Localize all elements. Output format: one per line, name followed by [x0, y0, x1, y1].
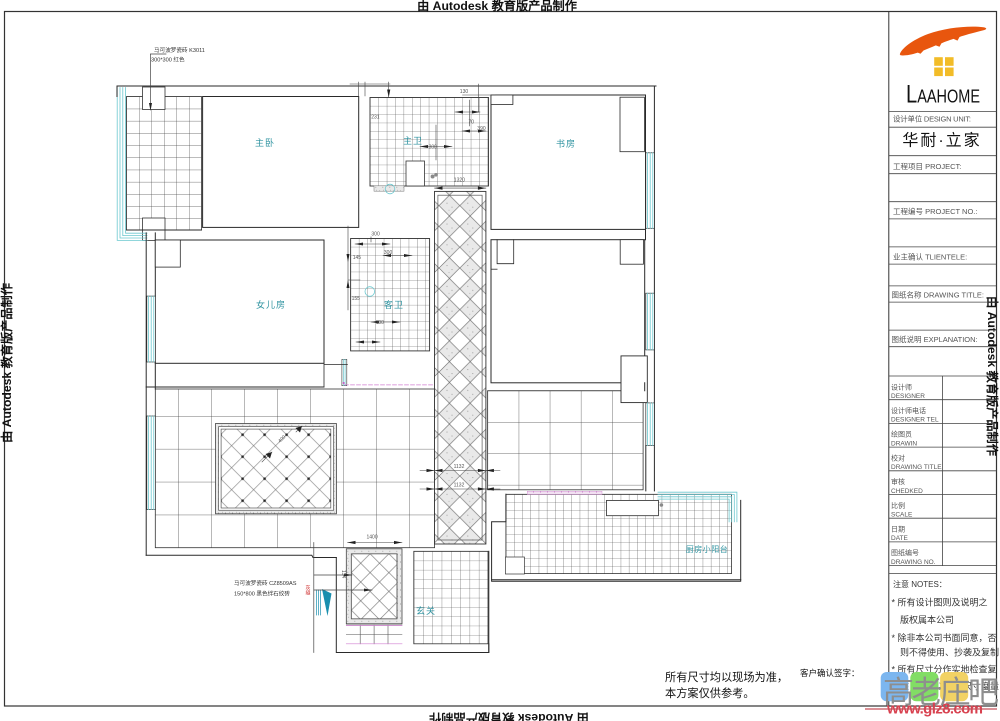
svg-text:图纸编号: 图纸编号 [891, 548, 919, 557]
svg-text:1132: 1132 [454, 464, 465, 470]
svg-text:DATE: DATE [891, 535, 909, 542]
svg-text:日期: 日期 [891, 526, 905, 534]
svg-text:校对: 校对 [891, 453, 905, 462]
svg-text:图纸名称 DRAWING TITLE:: 图纸名称 DRAWING TITLE: [892, 290, 985, 300]
svg-text:华耐·立家: 华耐·立家 [902, 132, 981, 150]
svg-text:绘图员: 绘图员 [891, 430, 912, 439]
svg-text:设计师: 设计师 [891, 383, 912, 392]
svg-text:工程项目 PROJECT:: 工程项目 PROJECT: [893, 162, 961, 171]
svg-text:由 Autodesk 教育版产品制作: 由 Autodesk 教育版产品制作 [417, 0, 577, 13]
svg-text:女儿房: 女儿房 [256, 299, 286, 310]
svg-text:客卫: 客卫 [384, 299, 404, 310]
svg-text:马可波罗瓷砖 K3011: 马可波罗瓷砖 K3011 [154, 46, 205, 54]
svg-text:注意 NOTES：: 注意 NOTES： [893, 579, 947, 589]
svg-text:主卫: 主卫 [403, 135, 423, 146]
svg-text:* 除非本公司书面同意，否: * 除非本公司书面同意，否 [892, 632, 997, 643]
svg-text:比例: 比例 [891, 501, 905, 510]
svg-text:* 所有设计图则及说明之: * 所有设计图则及说明之 [892, 597, 988, 608]
svg-text:155: 155 [352, 296, 361, 302]
svg-text:灰缝: 灰缝 [305, 584, 311, 596]
svg-text:DESIGNER TEL: DESIGNER TEL [891, 417, 939, 424]
svg-text:业主确认 TLIENTELE:: 业主确认 TLIENTELE: [893, 252, 967, 262]
svg-text:由 Autodesk 教育版产品制作: 由 Autodesk 教育版产品制作 [429, 711, 589, 721]
svg-text:本方案仅供参考。: 本方案仅供参考。 [665, 686, 755, 700]
svg-text:则不得使用、抄袭及复制: 则不得使用、抄袭及复制 [900, 647, 999, 658]
svg-text:300: 300 [384, 250, 393, 256]
svg-text:390: 390 [477, 126, 486, 132]
svg-text:客户确认签字：: 客户确认签字： [800, 668, 860, 678]
svg-text:1400: 1400 [367, 535, 378, 541]
svg-text:150*800 黑色绊石纹砖: 150*800 黑色绊石纹砖 [234, 590, 290, 598]
svg-text:所有尺寸均以现场为准，: 所有尺寸均以现场为准， [665, 670, 788, 684]
svg-text:300: 300 [371, 231, 380, 237]
svg-text:审核: 审核 [891, 477, 905, 486]
svg-text:SCALE: SCALE [891, 512, 913, 519]
svg-text:设计单位 DESIGN UNIT:: 设计单位 DESIGN UNIT: [893, 114, 971, 124]
svg-text:设计师电话: 设计师电话 [891, 406, 926, 415]
svg-text:版权属本公司: 版权属本公司 [900, 614, 954, 625]
svg-text:70: 70 [469, 120, 475, 126]
svg-text:玄关: 玄关 [416, 605, 436, 616]
svg-text:马可波罗瓷砖 CZ8509AS: 马可波罗瓷砖 CZ8509AS [234, 579, 297, 587]
svg-text:145: 145 [353, 255, 362, 261]
svg-text:DESIGNER: DESIGNER [891, 393, 925, 400]
svg-text:CHEDKED: CHEDKED [891, 488, 923, 495]
svg-text:300*300 红色: 300*300 红色 [151, 56, 185, 64]
svg-text:图纸说明 EXPLANATION:: 图纸说明 EXPLANATION: [892, 334, 978, 344]
svg-text:工程编号 PROJECT NO.:: 工程编号 PROJECT NO.: [893, 206, 977, 216]
svg-text:主卧: 主卧 [255, 137, 275, 148]
svg-text:130: 130 [460, 89, 469, 95]
svg-text:由 Autodesk 教育版产品制作: 由 Autodesk 教育版产品制作 [0, 283, 14, 443]
svg-text:DRAWING NO.: DRAWING NO. [891, 559, 936, 566]
svg-text:1132: 1132 [454, 483, 465, 489]
svg-text:书房: 书房 [556, 138, 576, 149]
svg-text:DRAWING TITLE: DRAWING TITLE [891, 464, 942, 471]
svg-text:300: 300 [429, 145, 438, 151]
svg-text:231: 231 [371, 115, 380, 121]
svg-text:134: 134 [340, 570, 346, 579]
svg-text:100: 100 [376, 320, 385, 326]
svg-text:DRAWIN: DRAWIN [891, 440, 917, 447]
svg-text:1320: 1320 [454, 178, 465, 184]
svg-text:厨房小阳台: 厨房小阳台 [686, 544, 729, 554]
